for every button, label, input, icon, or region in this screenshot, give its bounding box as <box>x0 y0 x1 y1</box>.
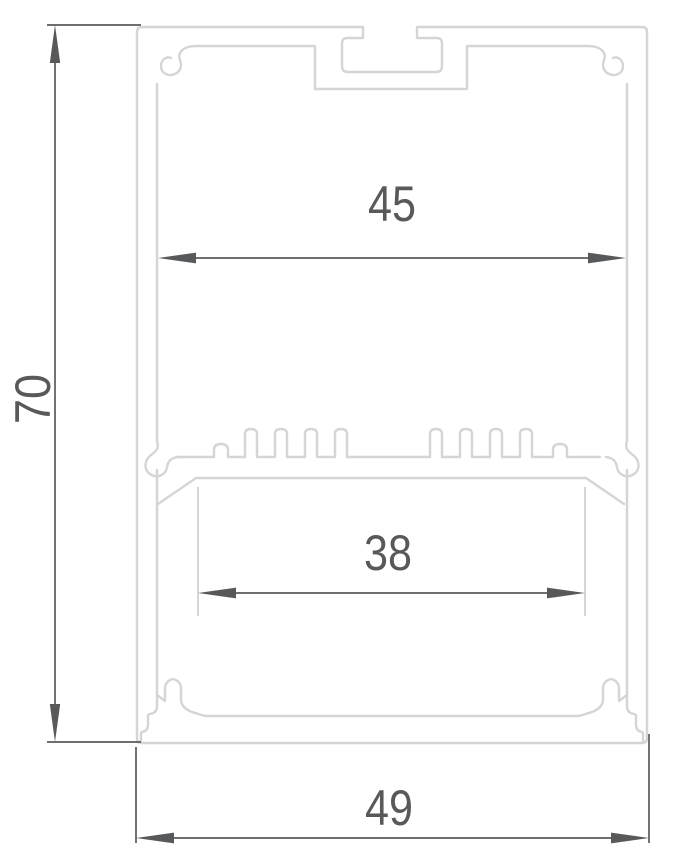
dimension-top-inner-width: 45 <box>158 176 626 263</box>
dimension-overall-width: 49 <box>136 734 649 843</box>
arrowhead-right-icon <box>547 588 585 599</box>
dimension-label-overall-width: 49 <box>365 780 413 836</box>
profile-outline <box>137 27 647 743</box>
dimension-lens-width: 38 <box>198 487 585 616</box>
dimension-label-inner-width: 45 <box>368 176 416 232</box>
inner-ceiling <box>196 46 588 89</box>
arrowhead-left-icon <box>198 588 236 599</box>
foot-step-left <box>141 697 157 742</box>
outer-contour-with-t-slot <box>137 27 647 743</box>
arrowhead-right-icon <box>611 833 649 844</box>
screw-curl-mid-left <box>146 441 179 476</box>
screw-curl-top-right <box>588 46 623 75</box>
diffuser-hooks-and-bottom-shelf <box>157 679 627 716</box>
dimensions: 70 45 38 <box>5 25 649 843</box>
drawing-canvas: 70 45 38 <box>0 0 677 854</box>
foot-step-right <box>627 697 643 742</box>
dimension-overall-height: 70 <box>5 25 141 742</box>
technical-drawing: 70 45 38 <box>0 0 677 854</box>
screw-curl-mid-right <box>606 441 639 476</box>
dimension-label-height: 70 <box>5 374 61 424</box>
lens-chamber-top <box>158 478 624 504</box>
arrowhead-left-icon <box>158 253 196 264</box>
arrowhead-down-icon <box>50 704 60 742</box>
arrowhead-right-icon <box>588 253 626 264</box>
heatsink-fins-shelf <box>177 429 600 457</box>
arrowhead-up-icon <box>50 25 60 63</box>
screw-curl-top-left <box>161 46 196 75</box>
arrowhead-left-icon <box>136 833 174 844</box>
dimension-label-lens-width: 38 <box>364 525 412 581</box>
